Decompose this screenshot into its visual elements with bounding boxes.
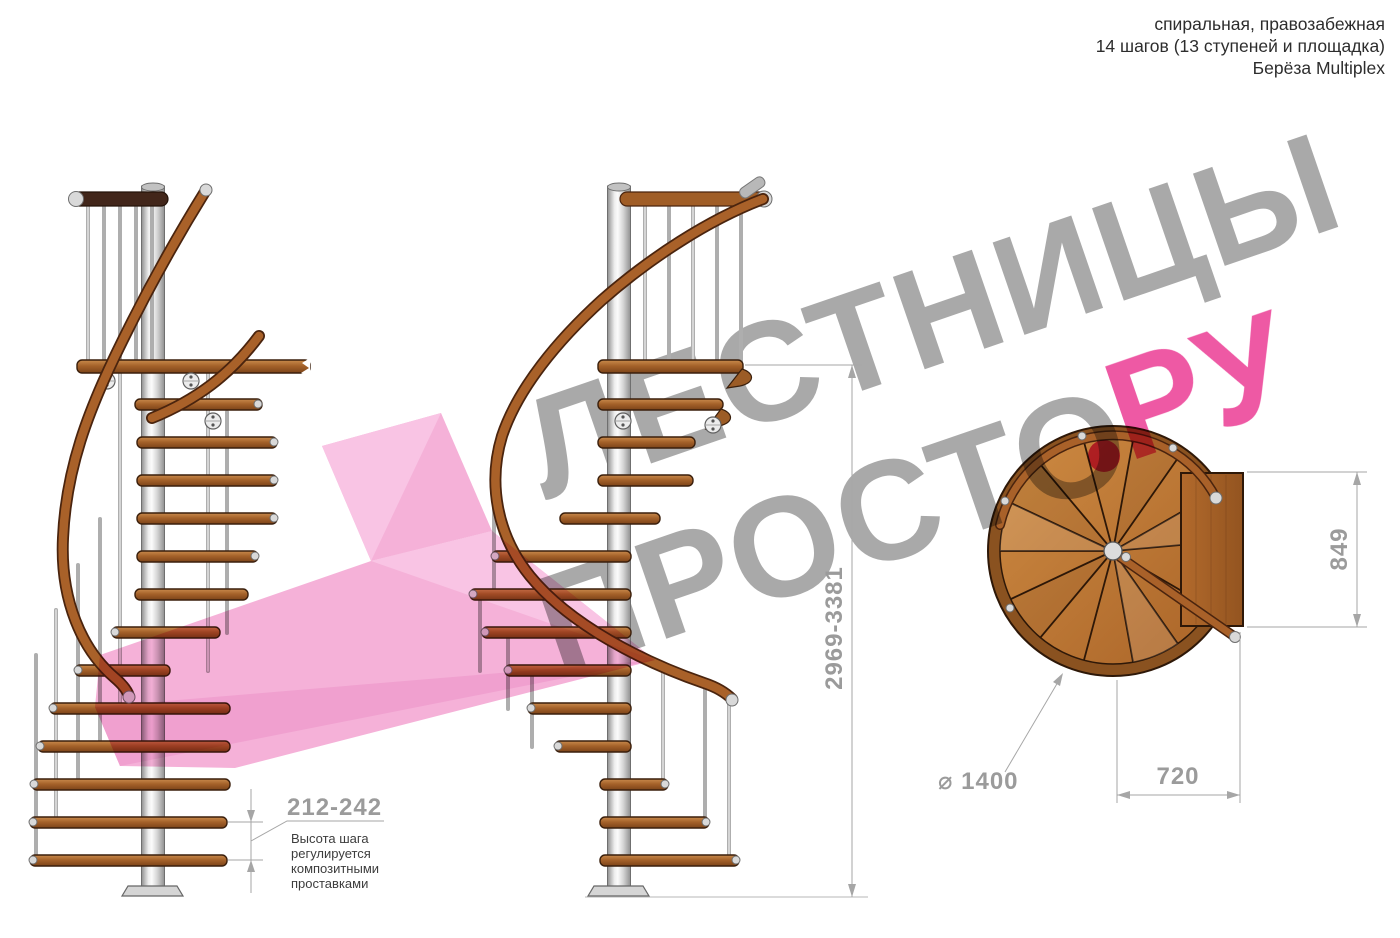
handrail-end-cap <box>726 694 738 706</box>
tread <box>598 399 723 410</box>
title-line-2: 14 шагов (13 ступеней и площадка) <box>1096 36 1385 56</box>
base-flange <box>122 886 183 896</box>
svg-text:Высота шага: Высота шага <box>291 831 369 846</box>
dimension-arrow <box>1117 791 1130 799</box>
pole-cap <box>608 183 631 191</box>
dimension-step-height: 212-242 Высота шага регулируется компози… <box>228 789 384 893</box>
tread <box>600 779 668 790</box>
tread <box>600 855 739 866</box>
title-line-1: спиральная, правозабежная <box>1154 14 1385 34</box>
tread <box>528 703 631 714</box>
step-note: Высота шага регулируется композитными пр… <box>291 831 379 891</box>
dimension-arrow <box>247 860 255 872</box>
tread <box>137 475 277 486</box>
dim-total-height-label: 2969-3381 <box>821 566 848 690</box>
tread <box>560 513 660 524</box>
plan-guard-cap <box>1230 632 1241 643</box>
dimension-arrow <box>848 884 856 897</box>
dim-depth-label: 849 <box>1326 527 1353 570</box>
pole-cap <box>142 183 165 191</box>
base-flange <box>588 886 649 896</box>
leader-arrow <box>1053 673 1063 686</box>
guard-rail <box>72 192 168 206</box>
tread <box>555 741 631 752</box>
tread <box>135 589 248 600</box>
side-view-left <box>29 183 310 896</box>
plan-center-hub <box>1104 542 1122 560</box>
dimension-landing-depth: 849 <box>1247 472 1367 627</box>
svg-text:регулируется: регулируется <box>291 846 371 861</box>
dim-diameter-label: ⌀ 1400 <box>938 768 1019 795</box>
dim-step-height-label: 212-242 <box>287 794 382 821</box>
tread <box>598 437 695 448</box>
tread <box>598 360 743 373</box>
handrail-top-cap <box>200 184 212 196</box>
logo-dot <box>1088 440 1120 472</box>
title-line-3: Берёза Multiplex <box>1253 58 1386 78</box>
plan-hub-knob <box>1122 553 1131 562</box>
dim-width-label: 720 <box>1156 763 1199 790</box>
tread <box>32 779 230 790</box>
leader-line <box>1005 682 1058 772</box>
tread <box>30 855 227 866</box>
dimension-diameter: ⌀ 1400 <box>938 673 1063 795</box>
dimension-arrow <box>1353 614 1361 627</box>
tread <box>137 513 277 524</box>
drawing-svg: ЛЕСТНИЦЫ ПРОСТО <box>0 0 1400 938</box>
dimension-arrow <box>1227 791 1240 799</box>
tread <box>137 437 277 448</box>
tread <box>598 475 693 486</box>
tread <box>137 551 258 562</box>
title-block: спиральная, правозабежная 14 шагов (13 с… <box>1096 14 1386 78</box>
tread <box>600 817 709 828</box>
svg-text:композитными: композитными <box>291 861 379 876</box>
svg-text:проставками: проставками <box>291 876 368 891</box>
tread <box>30 817 227 828</box>
dimension-arrow <box>247 810 255 822</box>
dimension-arrow <box>1353 472 1361 485</box>
plan-handrail-cap <box>1210 492 1222 504</box>
staircase-drawing-page: ЛЕСТНИЦЫ ПРОСТО <box>0 0 1400 938</box>
guard-rail-cap <box>69 192 84 207</box>
